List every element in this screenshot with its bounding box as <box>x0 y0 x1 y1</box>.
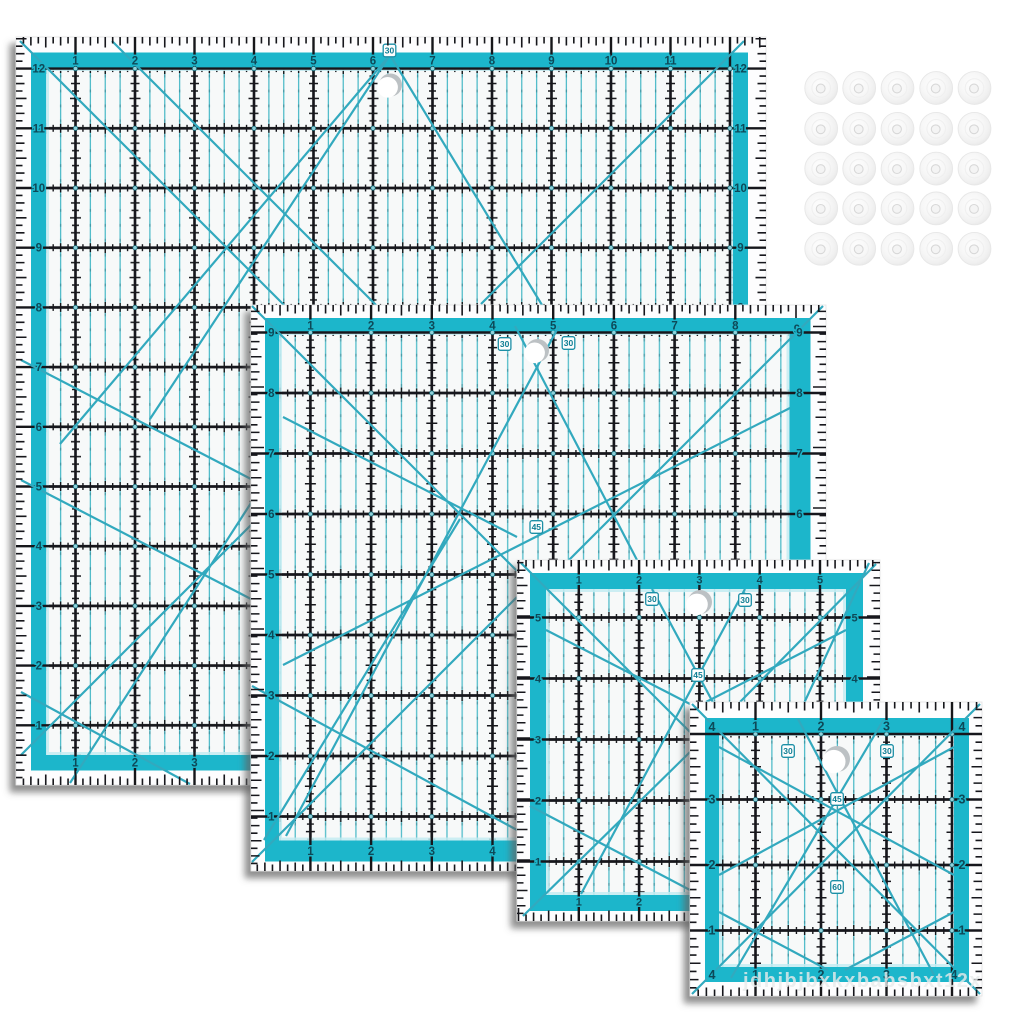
svg-text:2: 2 <box>132 758 138 770</box>
svg-text:2: 2 <box>268 751 274 763</box>
svg-text:1: 1 <box>709 924 716 938</box>
svg-text:8: 8 <box>268 388 275 400</box>
svg-text:6: 6 <box>268 509 274 521</box>
svg-text:2: 2 <box>368 321 374 333</box>
svg-text:7: 7 <box>268 449 274 461</box>
svg-text:3: 3 <box>191 56 197 68</box>
svg-text:4: 4 <box>489 846 496 858</box>
svg-text:45: 45 <box>832 794 842 804</box>
svg-text:2: 2 <box>818 720 825 734</box>
svg-text:6: 6 <box>36 422 42 434</box>
svg-text:30: 30 <box>385 46 395 56</box>
svg-text:2: 2 <box>36 661 42 673</box>
svg-text:9: 9 <box>36 243 42 255</box>
svg-text:8: 8 <box>36 302 43 314</box>
svg-text:8: 8 <box>732 321 739 333</box>
svg-text:9: 9 <box>796 328 802 340</box>
svg-text:30: 30 <box>647 594 657 604</box>
svg-text:4: 4 <box>709 720 716 734</box>
svg-text:12: 12 <box>32 64 45 76</box>
svg-text:5: 5 <box>535 613 541 625</box>
svg-text:11: 11 <box>664 56 677 68</box>
svg-text:1: 1 <box>72 56 79 68</box>
svg-text:6: 6 <box>370 56 376 68</box>
svg-text:6: 6 <box>796 509 802 521</box>
svg-text:12: 12 <box>734 64 747 76</box>
svg-text:4: 4 <box>489 321 496 333</box>
svg-text:2: 2 <box>535 796 541 808</box>
svg-text:3: 3 <box>191 758 197 770</box>
svg-text:11: 11 <box>33 123 46 135</box>
svg-text:10: 10 <box>734 183 747 195</box>
svg-text:11: 11 <box>734 123 747 135</box>
svg-text:3: 3 <box>709 793 716 807</box>
svg-text:1: 1 <box>72 758 79 770</box>
svg-text:jdhjbjbxkxbabsbxt12x: jdhjbjbxkxbabsbxt12x <box>742 970 982 992</box>
svg-text:3: 3 <box>268 691 274 703</box>
svg-text:7: 7 <box>36 362 42 374</box>
svg-text:5: 5 <box>268 570 275 582</box>
svg-text:4: 4 <box>251 56 258 68</box>
svg-text:1: 1 <box>576 897 582 909</box>
svg-text:1: 1 <box>576 575 582 587</box>
svg-text:1: 1 <box>36 720 43 732</box>
svg-text:5: 5 <box>310 56 317 68</box>
svg-text:30: 30 <box>882 746 892 756</box>
svg-text:30: 30 <box>783 746 793 756</box>
svg-text:5: 5 <box>550 321 557 333</box>
svg-text:10: 10 <box>32 183 45 195</box>
svg-text:7: 7 <box>429 56 435 68</box>
svg-text:3: 3 <box>429 846 435 858</box>
svg-text:5: 5 <box>36 482 43 494</box>
svg-text:2: 2 <box>636 897 642 909</box>
svg-text:45: 45 <box>693 670 703 680</box>
svg-text:4: 4 <box>709 968 716 982</box>
svg-text:1: 1 <box>959 924 966 938</box>
svg-text:2: 2 <box>132 56 138 68</box>
svg-text:7: 7 <box>796 449 802 461</box>
svg-text:1: 1 <box>752 720 759 734</box>
svg-text:9: 9 <box>548 56 554 68</box>
svg-text:9: 9 <box>737 243 743 255</box>
svg-text:3: 3 <box>696 575 702 587</box>
svg-text:2: 2 <box>636 575 642 587</box>
svg-text:4: 4 <box>757 575 764 587</box>
svg-text:60: 60 <box>832 882 842 892</box>
svg-text:5: 5 <box>817 575 823 587</box>
svg-text:2: 2 <box>959 858 966 872</box>
svg-text:1: 1 <box>307 846 314 858</box>
svg-text:3: 3 <box>959 793 966 807</box>
svg-text:10: 10 <box>605 56 618 68</box>
svg-text:8: 8 <box>796 388 803 400</box>
svg-text:3: 3 <box>429 321 435 333</box>
svg-text:30: 30 <box>740 595 750 605</box>
svg-text:4: 4 <box>535 674 542 686</box>
svg-text:3: 3 <box>36 601 42 613</box>
svg-text:2: 2 <box>368 846 374 858</box>
svg-text:1: 1 <box>268 812 275 824</box>
svg-text:9: 9 <box>268 328 274 340</box>
svg-text:45: 45 <box>532 522 542 532</box>
svg-text:6: 6 <box>611 321 617 333</box>
svg-text:8: 8 <box>489 56 496 68</box>
svg-text:4: 4 <box>36 541 43 553</box>
svg-text:1: 1 <box>535 857 541 869</box>
svg-text:4: 4 <box>268 630 275 642</box>
svg-text:5: 5 <box>851 613 857 625</box>
svg-text:4: 4 <box>959 720 966 734</box>
svg-text:3: 3 <box>535 735 541 747</box>
svg-text:4: 4 <box>851 674 858 686</box>
svg-text:1: 1 <box>307 321 314 333</box>
svg-text:30: 30 <box>500 339 510 349</box>
svg-text:30: 30 <box>564 338 574 348</box>
svg-text:3: 3 <box>883 720 890 734</box>
svg-text:2: 2 <box>709 858 716 872</box>
svg-text:7: 7 <box>671 321 677 333</box>
